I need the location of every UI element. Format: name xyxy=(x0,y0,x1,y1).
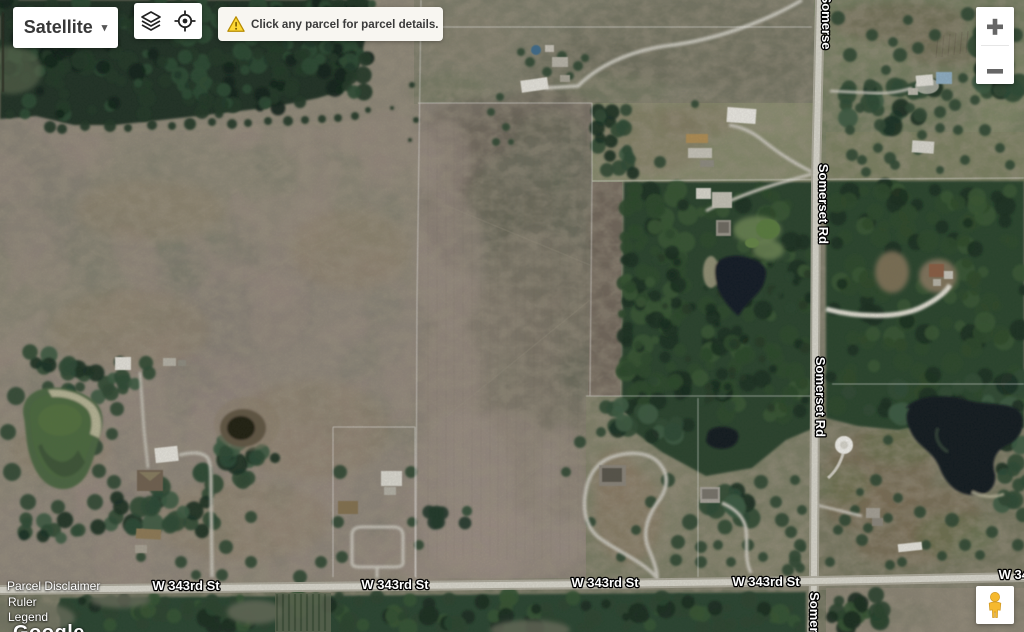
svg-text:Somerset Rd: Somerset Rd xyxy=(813,357,828,437)
svg-text:W 343r: W 343r xyxy=(999,567,1024,582)
svg-text:W 343rd St: W 343rd St xyxy=(732,574,800,589)
svg-text:W 343rd St: W 343rd St xyxy=(361,577,429,592)
svg-text:W 343rd St: W 343rd St xyxy=(571,575,639,590)
svg-text:Somerse: Somerse xyxy=(819,0,834,49)
svg-text:Somers: Somers xyxy=(807,592,822,632)
svg-text:W 343rd St: W 343rd St xyxy=(152,578,220,593)
svg-text:Somerset Rd: Somerset Rd xyxy=(816,164,831,244)
